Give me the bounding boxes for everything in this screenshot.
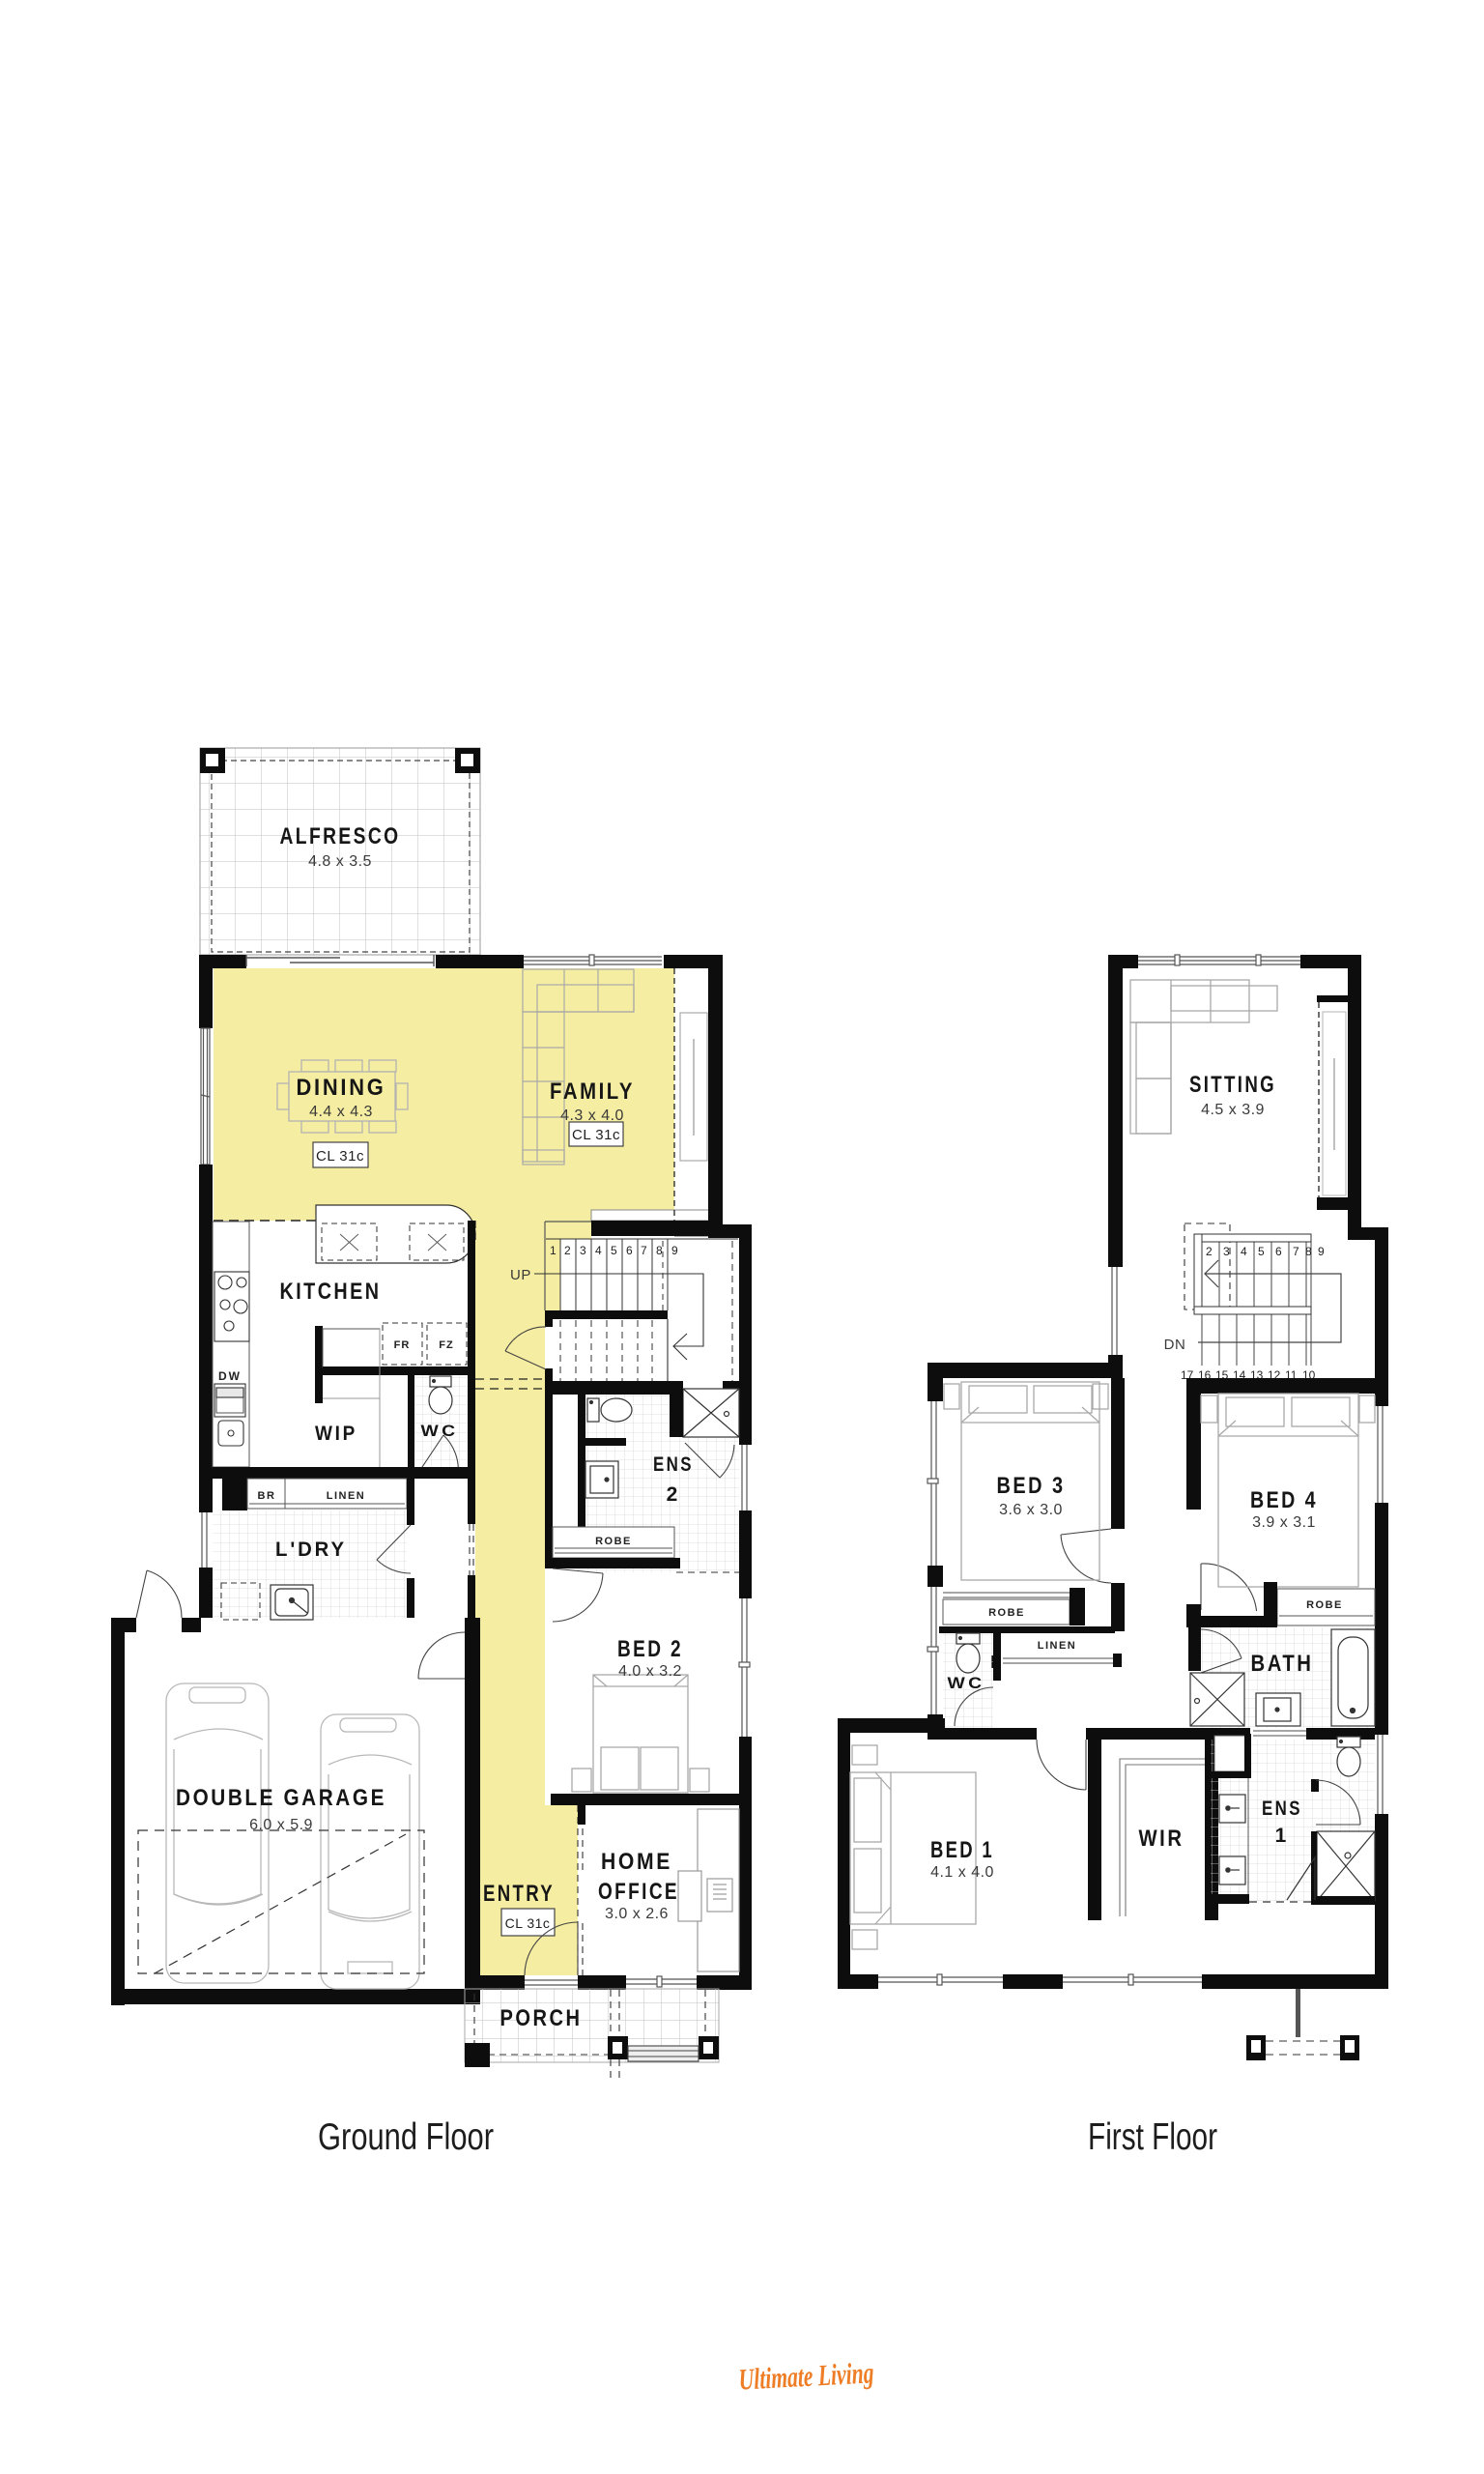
svg-text:4.0 x 3.2: 4.0 x 3.2: [618, 1663, 682, 1680]
svg-text:PORCH: PORCH: [500, 2005, 583, 2031]
svg-text:3.0 x 2.6: 3.0 x 2.6: [605, 1906, 669, 1922]
svg-text:BED 2: BED 2: [617, 1636, 683, 1662]
svg-text:Ultimate Living: Ultimate Living: [738, 2355, 875, 2396]
svg-text:6: 6: [626, 1244, 633, 1257]
svg-text:WC: WC: [421, 1422, 459, 1440]
svg-text:9: 9: [1318, 1245, 1325, 1258]
svg-text:3: 3: [1223, 1245, 1230, 1258]
svg-text:KITCHEN: KITCHEN: [280, 1279, 382, 1305]
svg-text:ROBE: ROBE: [595, 1536, 632, 1547]
svg-text:1: 1: [550, 1244, 556, 1257]
svg-text:FR: FR: [394, 1339, 411, 1351]
svg-text:2: 2: [1206, 1245, 1213, 1258]
svg-text:6: 6: [1275, 1245, 1282, 1258]
svg-text:FZ: FZ: [439, 1339, 453, 1351]
svg-text:2: 2: [667, 1483, 681, 1506]
svg-text:7: 7: [1293, 1245, 1299, 1258]
svg-text:Ground Floor: Ground Floor: [318, 2116, 494, 2158]
svg-text:6.0 x 5.9: 6.0 x 5.9: [249, 1817, 313, 1833]
svg-text:CL 31c: CL 31c: [572, 1127, 620, 1143]
svg-text:ENTRY: ENTRY: [483, 1881, 555, 1907]
svg-text:4.4 x 4.3: 4.4 x 4.3: [309, 1104, 373, 1120]
svg-text:BATH: BATH: [1251, 1651, 1314, 1677]
svg-text:ROBE: ROBE: [1306, 1599, 1343, 1611]
svg-text:DN: DN: [1164, 1337, 1186, 1353]
svg-text:3.9 x 3.1: 3.9 x 3.1: [1252, 1514, 1316, 1531]
svg-text:First Floor: First Floor: [1088, 2116, 1217, 2158]
svg-text:5: 5: [1258, 1245, 1265, 1258]
svg-text:HOME: HOME: [601, 1849, 672, 1875]
svg-text:8: 8: [656, 1244, 663, 1257]
svg-text:9: 9: [671, 1244, 678, 1257]
svg-text:BR: BR: [258, 1490, 276, 1502]
svg-text:4: 4: [1241, 1245, 1247, 1258]
svg-text:WIP: WIP: [315, 1423, 357, 1445]
svg-text:ENS: ENS: [653, 1453, 694, 1476]
svg-text:LINEN: LINEN: [327, 1490, 366, 1502]
svg-text:DOUBLE GARAGE: DOUBLE GARAGE: [176, 1785, 386, 1811]
svg-text:2: 2: [564, 1244, 571, 1257]
svg-text:UP: UP: [510, 1267, 531, 1283]
svg-text:4: 4: [595, 1244, 602, 1257]
svg-text:3: 3: [580, 1244, 586, 1257]
svg-text:DW: DW: [218, 1369, 242, 1383]
svg-text:1: 1: [1275, 1825, 1290, 1847]
svg-text:CL 31c: CL 31c: [505, 1915, 551, 1931]
svg-text:BED 3: BED 3: [997, 1473, 1066, 1499]
svg-text:3.6 x 3.0: 3.6 x 3.0: [999, 1502, 1063, 1518]
svg-text:ALFRESCO: ALFRESCO: [280, 823, 401, 849]
svg-text:CL 31c: CL 31c: [316, 1148, 364, 1165]
svg-text:WIR: WIR: [1139, 1826, 1184, 1852]
svg-text:FAMILY: FAMILY: [550, 1079, 635, 1105]
svg-text:SITTING: SITTING: [1189, 1072, 1276, 1098]
svg-text:BED 4: BED 4: [1250, 1487, 1318, 1513]
svg-text:7: 7: [641, 1244, 647, 1257]
svg-text:LINEN: LINEN: [1038, 1640, 1077, 1652]
svg-text:4.1 x 4.0: 4.1 x 4.0: [930, 1864, 994, 1881]
svg-text:OFFICE: OFFICE: [598, 1879, 679, 1905]
svg-text:DINING: DINING: [297, 1075, 386, 1101]
svg-text:ENS: ENS: [1262, 1798, 1302, 1820]
svg-text:ROBE: ROBE: [988, 1607, 1025, 1619]
svg-text:4.8 x 3.5: 4.8 x 3.5: [308, 853, 372, 870]
svg-text:BED 1: BED 1: [930, 1837, 994, 1863]
svg-text:8: 8: [1305, 1245, 1312, 1258]
svg-text:L'DRY: L'DRY: [275, 1539, 347, 1561]
svg-text:5: 5: [611, 1244, 617, 1257]
svg-text:4.5 x 3.9: 4.5 x 3.9: [1201, 1102, 1265, 1118]
